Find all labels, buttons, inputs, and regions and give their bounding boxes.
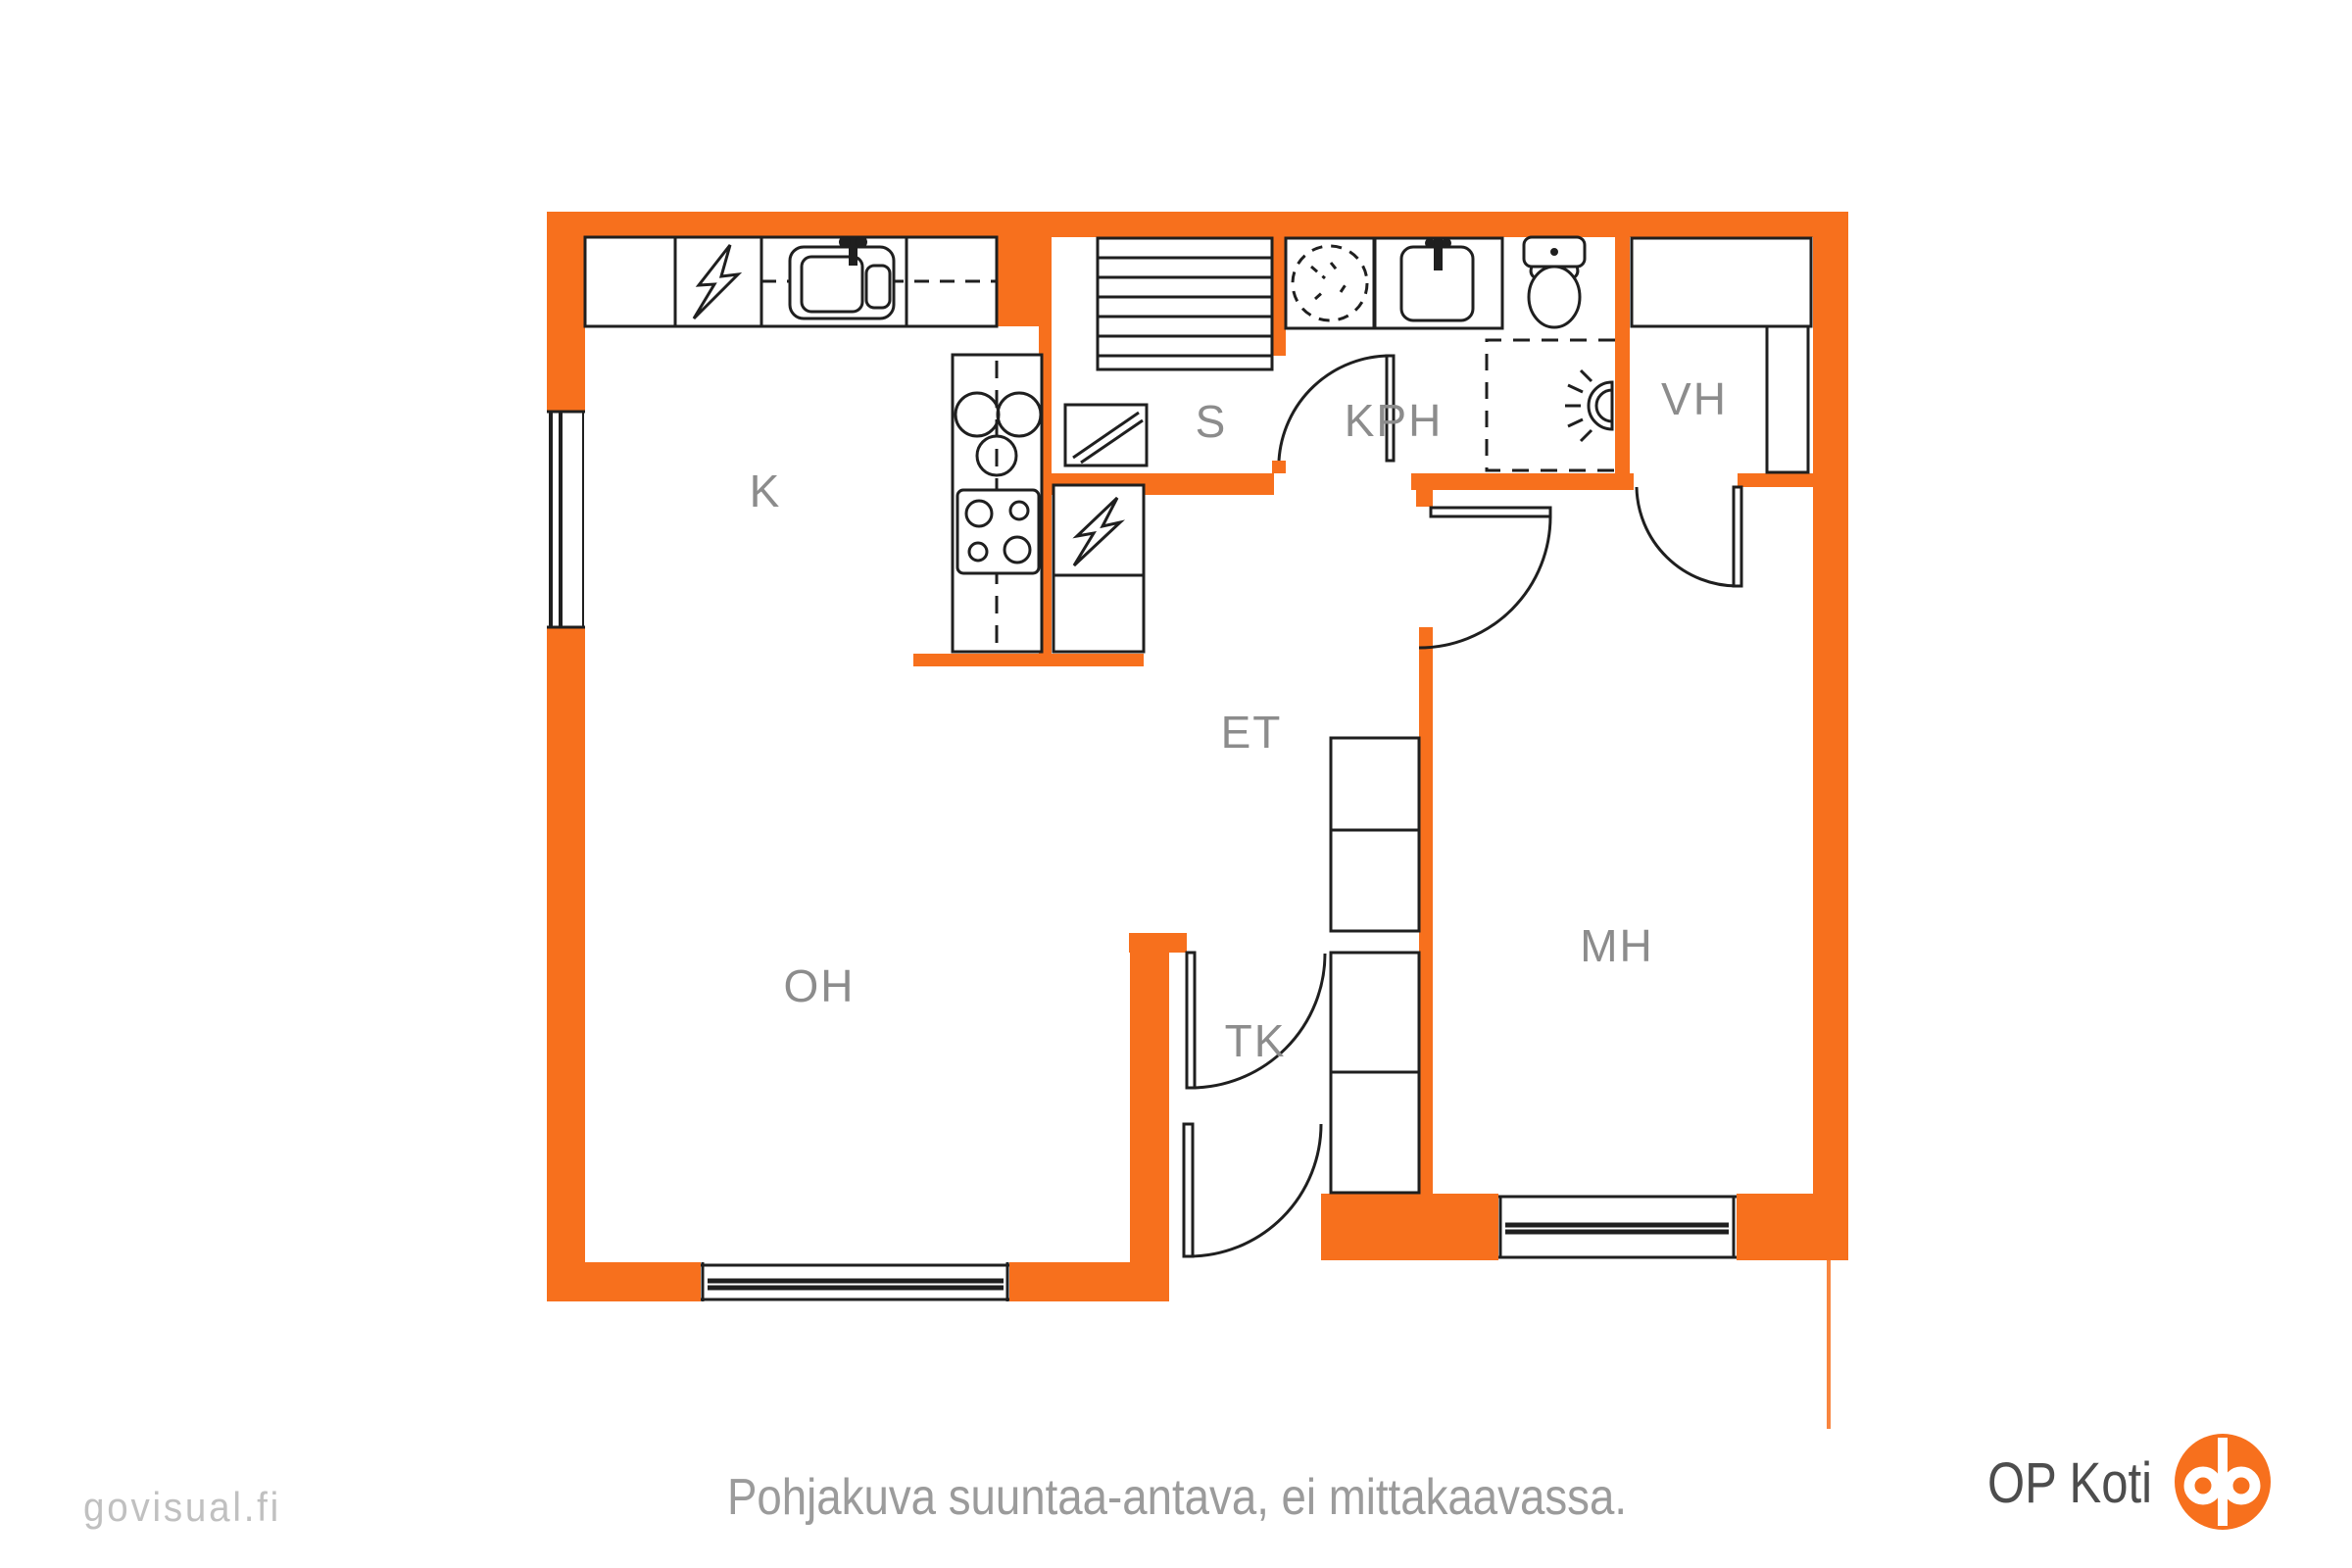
watermark-govisual: govisual.fi — [83, 1484, 281, 1530]
wall-kph-stub — [1416, 490, 1433, 507]
wall-kph-bottom — [1411, 473, 1634, 490]
window-bedroom-icon — [1498, 1196, 1737, 1258]
wall-kitchen-base — [913, 654, 1144, 666]
wall-et-mh — [1419, 627, 1433, 1194]
room-label-bedroom: MH — [1580, 920, 1654, 971]
room-label-kitchen: K — [750, 465, 782, 516]
wall-tk-top — [1129, 933, 1187, 953]
floorplan-drawing: K S KPH VH ET MH OH TK Pohjakuva suuntaa… — [0, 0, 2352, 1568]
bathroom-door-icon — [1419, 508, 1550, 648]
kitchen-sink-icon — [790, 236, 894, 318]
window-living-room-icon — [701, 1262, 1009, 1301]
floorplan-page: K S KPH VH ET MH OH TK Pohjakuva suuntaa… — [0, 0, 2352, 1568]
room-label-vestibule: TK — [1225, 1015, 1287, 1066]
room-label-sauna: S — [1196, 396, 1228, 447]
room-label-walkin-closet: VH — [1661, 373, 1728, 424]
wc-toilet-icon — [1524, 237, 1585, 327]
vestibule-closets — [1331, 953, 1419, 1193]
wall-bottom-mid — [1009, 1262, 1169, 1301]
four-burner-cooktop-icon — [957, 490, 1039, 573]
wall-mh-bottom-left — [1321, 1194, 1498, 1260]
terrace-boundary-line — [1827, 1260, 1831, 1429]
wall-mh-bottom-right — [1737, 1194, 1816, 1260]
wall-left-upper — [547, 212, 585, 412]
utility-boxes — [1053, 485, 1144, 652]
walkin-closet-door-icon — [1637, 487, 1741, 586]
wall-left-lower — [547, 627, 585, 1301]
sauna-bench-slats-icon — [1098, 238, 1272, 369]
wall-bottom-left — [547, 1262, 701, 1301]
front-door-icon — [1184, 1124, 1321, 1256]
wall-s-kph — [1272, 214, 1286, 356]
wall-right — [1813, 212, 1848, 1260]
brand-op-koti-label: OP Koti — [1987, 1451, 2152, 1515]
wall-tk-left — [1130, 933, 1169, 1262]
hall-closets — [1331, 738, 1419, 931]
footer-disclaimer: Pohjakuva suuntaa-antava, ei mittakaavas… — [727, 1469, 1627, 1526]
wall-s-bottom-stub — [1272, 461, 1286, 473]
room-label-living-room: OH — [784, 960, 856, 1011]
window-left-icon — [547, 412, 585, 627]
washbasin-icon — [1375, 238, 1502, 328]
walkin-closet-shelves — [1632, 238, 1811, 472]
wall-vh-bottom — [1738, 473, 1813, 487]
room-label-hall: ET — [1221, 707, 1283, 758]
room-label-bathroom: KPH — [1345, 395, 1444, 446]
op-logo-icon — [2175, 1434, 2271, 1530]
washing-machine-icon — [1286, 238, 1374, 328]
sauna-heater-kiuas-icon — [1065, 405, 1147, 465]
walls — [547, 212, 1848, 1429]
wall-kph-vh — [1615, 212, 1630, 478]
wall-top — [547, 212, 1848, 237]
wall-lamp-icon — [1565, 370, 1612, 441]
